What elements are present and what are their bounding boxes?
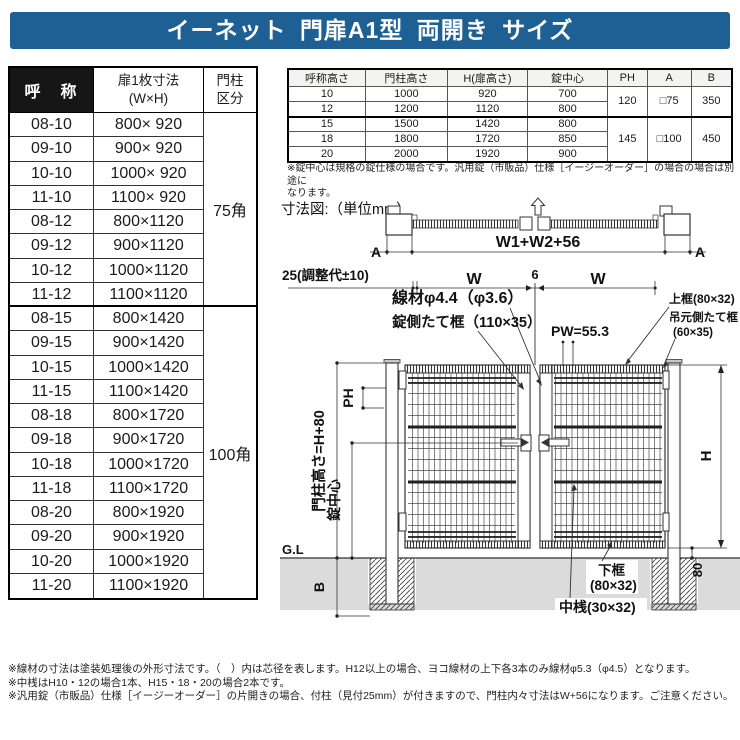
cell-b-group2: 450: [691, 117, 732, 162]
cell: 15: [288, 117, 366, 132]
lock-stile-plan: [538, 217, 550, 230]
table-row: 15 1500 1420 800 145 □100 450: [288, 117, 732, 132]
dim-label-w-right: W: [590, 271, 606, 288]
dim-label-adjust: 25(調整代±10): [282, 267, 369, 283]
cell-ph-group2: 145: [607, 117, 647, 162]
dim-label-w-left: W: [466, 271, 482, 288]
right-post: [668, 363, 680, 604]
cell: 850: [528, 132, 608, 147]
table-row: 11-15 1100×1420: [10, 380, 204, 404]
col-header: A: [647, 69, 691, 87]
cell-model-name: 11-20: [10, 574, 94, 598]
col-header: PH: [607, 69, 647, 87]
cell-model-name: 09-18: [10, 428, 94, 451]
size-table-body: 08-10 800× 920 09-10 900× 920 10-10 1000…: [10, 113, 256, 598]
right-lock-stile: [540, 365, 552, 548]
cell: 1200: [366, 102, 448, 117]
left-bottom-rail: [405, 541, 530, 548]
left-post-plan: [386, 214, 412, 235]
table-row: 08-10 800× 920: [10, 113, 204, 137]
label-wire: 線材φ4.4（φ3.6）: [392, 288, 523, 307]
table-row: 10-20 1000×1920: [10, 550, 204, 574]
cell-door-dimension: 1000× 920: [94, 162, 204, 185]
lock-stile-plan: [520, 217, 532, 230]
cell: 700: [528, 87, 608, 102]
height-table-header-row: 呼称高さ 門柱高さ H(扉高さ) 錠中心 PH A B: [288, 69, 732, 87]
cell-model-name: 09-20: [10, 525, 94, 548]
label-bottom-rail: 下框: [598, 562, 626, 578]
cell-model-name: 11-18: [10, 477, 94, 500]
table-row: 11-18 1100×1720: [10, 477, 204, 501]
cell-door-dimension: 800× 920: [94, 113, 204, 136]
right-door-mesh: [554, 373, 662, 543]
label-bottom-rail-size: (80×32): [590, 578, 637, 593]
table-row: 09-20 900×1920: [10, 525, 204, 549]
left-lock-stile: [518, 365, 530, 548]
dimension-diagram: A A W1+W2+56 25(調整代±10) W 6 W: [280, 195, 740, 665]
cell: 1500: [366, 117, 448, 132]
cell-door-dimension: 1100× 920: [94, 186, 204, 209]
cell-model-name: 08-20: [10, 501, 94, 524]
hinge: [663, 513, 669, 531]
footnote-line: ※中桟はH10・12の場合1本、H15・18・20の場合2本です。: [8, 677, 738, 691]
col-header: 錠中心: [528, 69, 608, 87]
table-row: 11-12 1100×1120: [10, 283, 204, 307]
post-group-100: 100角: [204, 307, 256, 598]
dim-label-six: 6: [531, 267, 538, 282]
cell-door-dimension: 800×1720: [94, 404, 204, 427]
cell-a-group1: □75: [647, 87, 691, 117]
left-door-plan: [412, 220, 518, 228]
label-hinge-stile: 吊元側たて框: [669, 310, 738, 324]
cell: 2000: [366, 147, 448, 162]
door-size-table: 呼 称 扉1枚寸法 (W×H) 門柱 区分 08-10 800× 920 09-…: [8, 66, 258, 600]
cell-door-dimension: 900×1120: [94, 234, 204, 257]
cell: 900: [528, 147, 608, 162]
page-title: イーネット 門扉A1型 両開き サイズ: [10, 12, 730, 49]
hinge: [399, 371, 406, 389]
table-row: 08-18 800×1720: [10, 404, 204, 428]
cell-door-dimension: 900×1920: [94, 525, 204, 548]
size-table-header: 呼 称 扉1枚寸法 (W×H) 門柱 区分: [10, 68, 256, 113]
table-row: 09-15 900×1420: [10, 331, 204, 355]
cell-model-name: 08-12: [10, 210, 94, 233]
cell-door-dimension: 1100×1720: [94, 477, 204, 500]
table-row: 10-12 1000×1120: [10, 259, 204, 283]
cell-door-dimension: 1100×1920: [94, 574, 204, 598]
table-row: 09-12 900×1120: [10, 234, 204, 258]
col-header: 呼称高さ: [288, 69, 366, 87]
footnote-line: ※線材の寸法は塗装処理後の外形寸法です。（ ）内は芯径を表します。H12以上の場…: [8, 663, 738, 677]
right-post-plan: [664, 214, 690, 235]
label-top-rail: 上框(80×32): [669, 291, 735, 306]
cell: 800: [528, 117, 608, 132]
cell-door-dimension: 1000×1420: [94, 356, 204, 379]
table-row: 11-20 1100×1920: [10, 574, 204, 598]
right-door-panel: [540, 365, 665, 548]
table-row: 09-18 900×1720: [10, 428, 204, 452]
dim-label-ph: PH: [340, 388, 356, 407]
table-row: 08-12 800×1120: [10, 210, 204, 234]
hinge: [663, 371, 669, 389]
spec-sheet-page: イーネット 門扉A1型 両開き サイズ 呼 称 扉1枚寸法 (W×H) 門柱 区…: [0, 0, 740, 740]
cell-model-name: 10-12: [10, 259, 94, 282]
cell-door-dimension: 900× 920: [94, 137, 204, 160]
post-group-75: 75角: [204, 113, 256, 307]
cell: 800: [528, 102, 608, 117]
cell-model-name: 10-18: [10, 453, 94, 476]
col-header: B: [691, 69, 732, 87]
col-header-dim: 扉1枚寸法 (W×H): [94, 68, 204, 112]
label-hinge-stile-size: (60×35): [673, 327, 713, 339]
cell-door-dimension: 1100×1120: [94, 283, 204, 305]
cell-model-name: 09-15: [10, 331, 94, 354]
cell: 1720: [447, 132, 528, 147]
table-row: 10-15 1000×1420: [10, 356, 204, 380]
cell-a-group2: □100: [647, 117, 691, 162]
plan-dimension-overall: A A W1+W2+56: [370, 234, 706, 260]
cell-model-name: 08-15: [10, 307, 94, 330]
cell-model-name: 11-12: [10, 283, 94, 305]
cell-model-name: 11-15: [10, 380, 94, 403]
dim-label-a-left: A: [371, 244, 381, 260]
post-type-column: 75角 100角: [204, 113, 256, 598]
cell-model-name: 10-10: [10, 162, 94, 185]
cell-door-dimension: 1100×1420: [94, 380, 204, 403]
footnotes: ※線材の寸法は塗装処理後の外形寸法です。（ ）内は芯径を表します。H12以上の場…: [8, 663, 738, 704]
table-row: 10 1000 920 700 120 □75 350: [288, 87, 732, 102]
cell-door-dimension: 800×1420: [94, 307, 204, 330]
label-pw: PW=55.3: [551, 323, 609, 339]
right-door-plan: [550, 220, 658, 228]
cell: 10: [288, 87, 366, 102]
cell-model-name: 09-10: [10, 137, 94, 160]
cell-door-dimension: 1000×1920: [94, 550, 204, 573]
cell: 1120: [447, 102, 528, 117]
cell-door-dimension: 900×1420: [94, 331, 204, 354]
cell: 1420: [447, 117, 528, 132]
col-header-name: 呼 称: [10, 68, 94, 112]
cell: 1920: [447, 147, 528, 162]
cell: 1800: [366, 132, 448, 147]
height-spec-table: 呼称高さ 門柱高さ H(扉高さ) 錠中心 PH A B 10 1000 920 …: [287, 68, 733, 163]
footnote-line: ※汎用錠（市販品）仕様［イージーオーダー］の片開きの場合、付柱（見付25mm）が…: [8, 690, 738, 704]
table-row: 11-10 1100× 920: [10, 186, 204, 210]
cell: 20: [288, 147, 366, 162]
cell-door-dimension: 1000×1120: [94, 259, 204, 282]
cell-model-name: 08-18: [10, 404, 94, 427]
cell-model-name: 11-10: [10, 186, 94, 209]
cell-door-dimension: 800×1920: [94, 501, 204, 524]
left-door-mesh: [408, 373, 515, 543]
cell: 1000: [366, 87, 448, 102]
table-row: 08-20 800×1920: [10, 501, 204, 525]
cell: 18: [288, 132, 366, 147]
left-post: [386, 363, 398, 604]
cell-ph-group1: 120: [607, 87, 647, 117]
cell-door-dimension: 900×1720: [94, 428, 204, 451]
dim-label-lock-center: 錠中心: [326, 479, 342, 521]
left-door-panel: [405, 365, 530, 548]
cell-b-group1: 350: [691, 87, 732, 117]
label-mid-rail: 中桟(30×32): [559, 599, 636, 615]
cell: 920: [447, 87, 528, 102]
dim-label-80: 80: [690, 563, 705, 577]
cell-model-name: 10-20: [10, 550, 94, 573]
dim-label-a-right: A: [695, 244, 705, 260]
table-row: 10-18 1000×1720: [10, 453, 204, 477]
cell-door-dimension: 800×1120: [94, 210, 204, 233]
col-header: 門柱高さ: [366, 69, 448, 87]
dim-label-h: H: [698, 451, 715, 462]
cell-door-dimension: 1000×1720: [94, 453, 204, 476]
cell-model-name: 10-15: [10, 356, 94, 379]
label-lock-stile: 錠側たて框（110×35）: [392, 313, 542, 331]
cell-model-name: 08-10: [10, 113, 94, 136]
dim-label-b: B: [311, 582, 327, 592]
dim-label-gl: G.L: [282, 542, 304, 557]
right-top-rail: [540, 365, 665, 373]
right-bottom-rail: [540, 541, 665, 548]
table-row: 09-10 900× 920: [10, 137, 204, 161]
left-top-rail: [405, 365, 530, 373]
table-row: 08-15 800×1420: [10, 307, 204, 331]
dim-label-w1w2: W1+W2+56: [496, 234, 581, 251]
col-header: H(扉高さ): [447, 69, 528, 87]
col-header-post: 門柱 区分: [204, 68, 256, 112]
size-rows: 08-10 800× 920 09-10 900× 920 10-10 1000…: [10, 113, 204, 598]
hinge: [399, 513, 406, 531]
swing-direction-arrow-icon: [532, 198, 545, 215]
cell: 12: [288, 102, 366, 117]
cell-model-name: 09-12: [10, 234, 94, 257]
table-row: 10-10 1000× 920: [10, 162, 204, 186]
